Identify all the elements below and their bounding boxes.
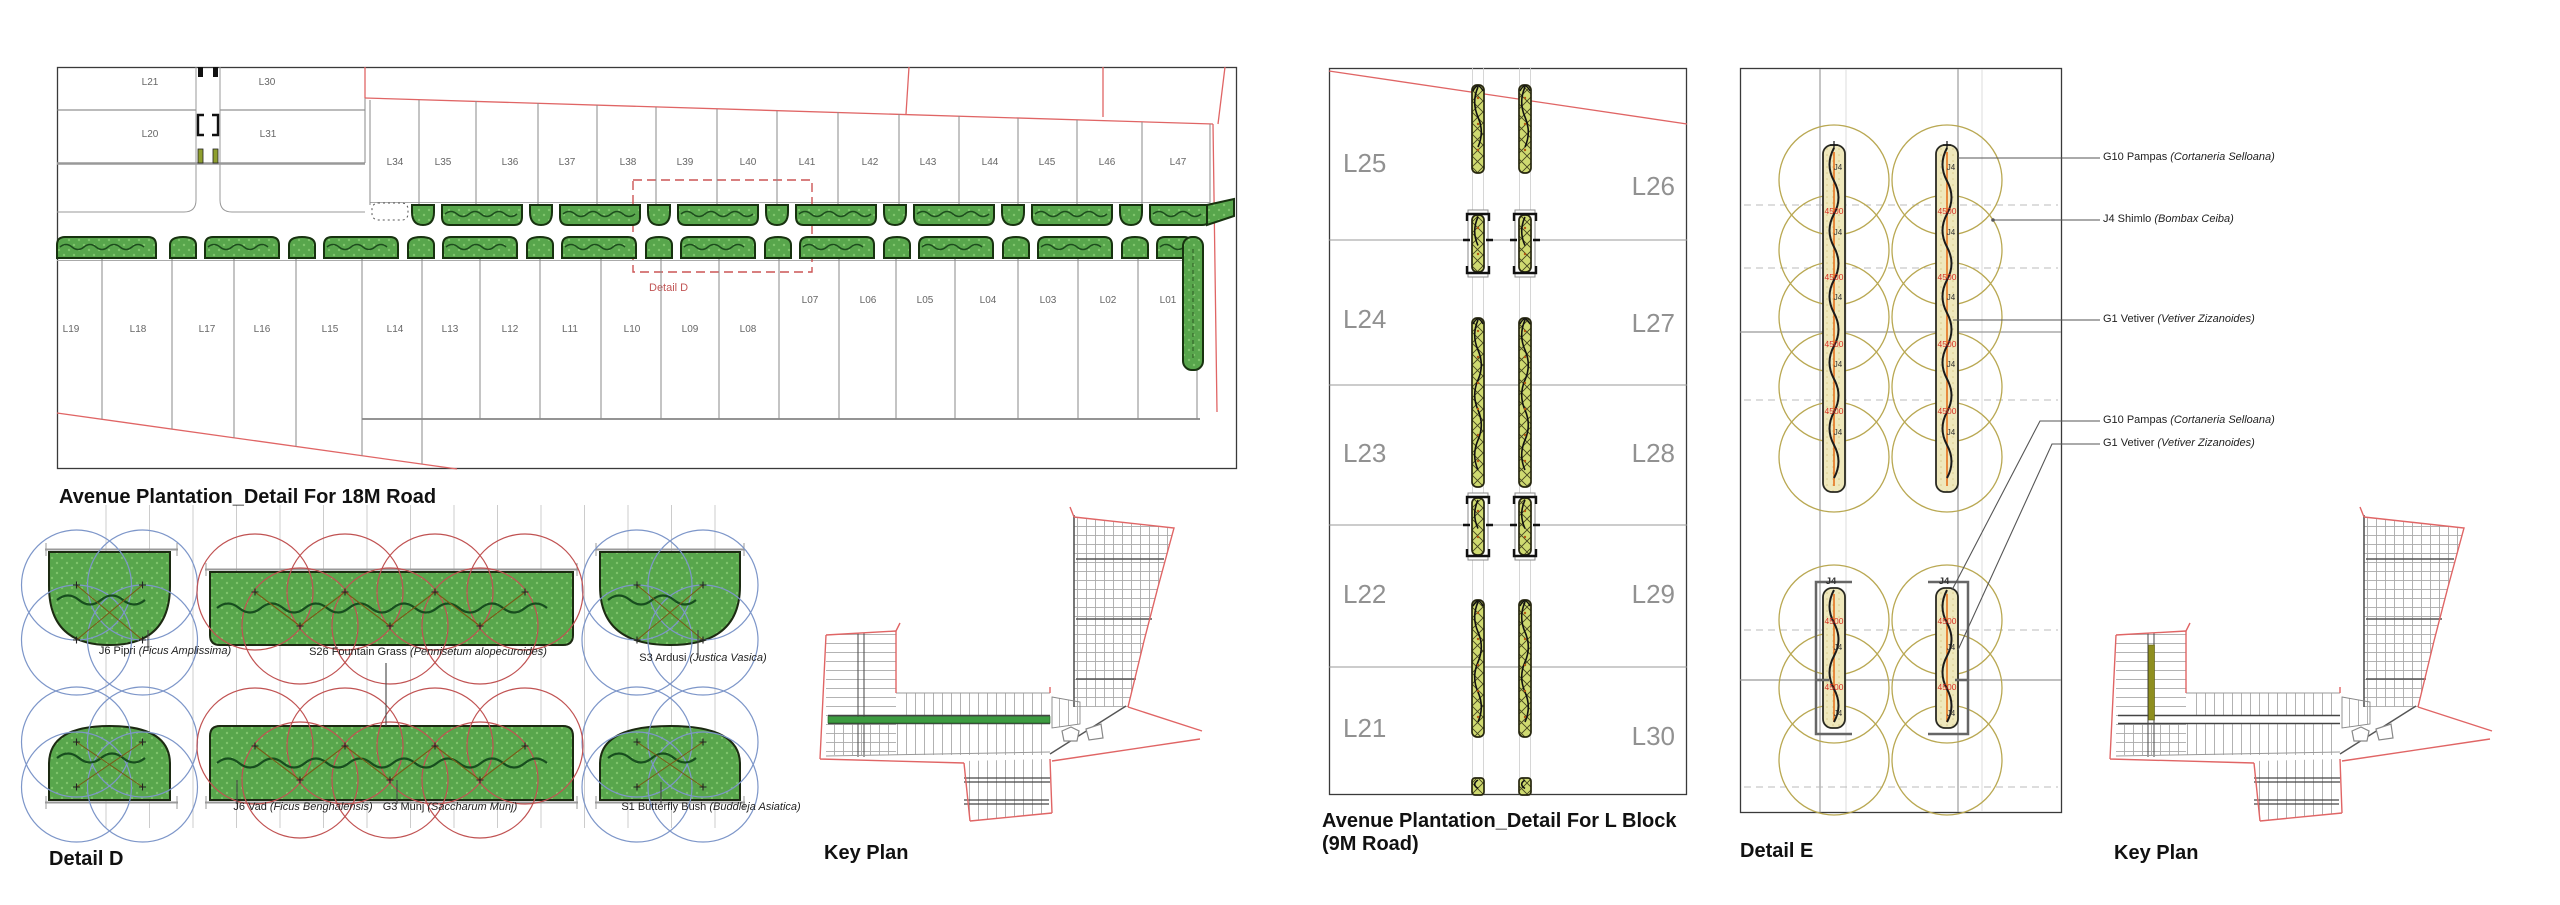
svg-text:L40: L40: [740, 157, 757, 168]
svg-text:J4: J4: [1834, 709, 1843, 718]
plan-dynamic-geometry: [57, 100, 1234, 464]
title-key-plan-left: Key Plan: [824, 842, 908, 865]
road-markers: [198, 67, 218, 163]
structural-lines: [1740, 69, 2061, 812]
svg-text:L04: L04: [980, 295, 997, 306]
plant-label-g3-munj: G3 Munj (Saccharum Munj): [383, 801, 518, 813]
plant-label-g1-vetiver-2: G1 Vetiver (Vetiver Zizanoides): [2103, 437, 2255, 449]
svg-text:4500: 4500: [1938, 339, 1957, 349]
svg-text:L01: L01: [1160, 295, 1177, 306]
highlighted-avenue-olive: [2149, 645, 2155, 720]
svg-text:L09: L09: [682, 324, 699, 335]
svg-text:J4: J4: [1947, 228, 1956, 237]
svg-text:J4: J4: [1947, 428, 1956, 437]
title-l-block-line2: (9M Road): [1322, 833, 1677, 856]
svg-text:J4: J4: [1947, 643, 1956, 652]
svg-text:4500: 4500: [1938, 206, 1957, 216]
title-18m-road: Avenue Plantation_Detail For 18M Road: [59, 486, 436, 509]
svg-text:J4: J4: [1826, 576, 1837, 587]
svg-text:L45: L45: [1039, 157, 1056, 168]
dimension-lines: [1834, 152, 1947, 722]
svg-text:L23: L23: [1343, 438, 1386, 468]
plant-label-j4-shimlo: J4 Shimlo (Bombax Ceiba): [2103, 213, 2234, 225]
svg-text:4500: 4500: [1938, 682, 1957, 692]
svg-text:4500: 4500: [1825, 272, 1844, 282]
lot-number-labels: L25L24L23L22L21L26L27L28L29L30: [1343, 148, 1675, 751]
svg-text:L36: L36: [502, 157, 519, 168]
plant-label-g10-pampas-1: G10 Pampas (Cortaneria Selloana): [2103, 151, 2275, 163]
svg-text:J4: J4: [1947, 709, 1956, 718]
svg-text:L37: L37: [559, 157, 576, 168]
svg-text:L42: L42: [862, 157, 879, 168]
svg-text:L18: L18: [130, 324, 147, 335]
leader-lines: [1952, 158, 2100, 650]
svg-text:L47: L47: [1170, 157, 1187, 168]
plant-label-s26-fountain-grass: S26 Fountain Grass (Pennisetum alopecuro…: [309, 646, 547, 658]
plan-18m-road: Detail D L21L30L20L31L34L35L36L37L38L39L…: [57, 67, 1237, 469]
svg-text:J4: J4: [1834, 360, 1843, 369]
svg-text:J4: J4: [1947, 293, 1956, 302]
svg-text:L38: L38: [620, 157, 637, 168]
svg-text:4500: 4500: [1825, 406, 1844, 416]
plant-label-j6-pipri: J6 Pipri (Ficus Amplissima): [99, 645, 231, 657]
svg-text:L30: L30: [1632, 721, 1675, 751]
key-plan-left-drawing: [812, 495, 1202, 855]
svg-text:J4: J4: [1834, 163, 1843, 172]
svg-text:4500: 4500: [1825, 339, 1844, 349]
svg-text:L25: L25: [1343, 148, 1386, 178]
svg-text:L43: L43: [920, 157, 937, 168]
svg-text:L07: L07: [802, 295, 819, 306]
svg-text:L17: L17: [199, 324, 216, 335]
plant-label-s3-ardusi: S3 Ardusi (Justica Vasica): [639, 652, 766, 664]
planting-strips: [1823, 145, 1958, 728]
svg-text:L21: L21: [142, 77, 159, 88]
plant-label-j6-vad: J6 Vad (Ficus Benghalensis): [233, 801, 372, 813]
svg-text:L11: L11: [562, 324, 578, 335]
highlighted-avenue-green: [828, 717, 1050, 724]
plant-label-s1-butterfly-bush: S1 Butterfly Bush (Buddleja Asiatica): [621, 801, 800, 813]
svg-text:J4: J4: [1834, 228, 1843, 237]
svg-text:J4: J4: [1834, 293, 1843, 302]
svg-text:L30: L30: [259, 77, 276, 88]
svg-text:L44: L44: [982, 157, 999, 168]
svg-text:L06: L06: [860, 295, 877, 306]
svg-text:L27: L27: [1632, 308, 1675, 338]
title-detail-d: Detail D: [49, 848, 123, 871]
svg-text:L02: L02: [1100, 295, 1117, 306]
plant-label-g10-pampas-2: G10 Pampas (Cortaneria Selloana): [2103, 414, 2275, 426]
svg-text:L16: L16: [254, 324, 271, 335]
median-planting-strips: [1463, 85, 1540, 795]
svg-text:L10: L10: [624, 324, 641, 335]
svg-text:L39: L39: [677, 157, 694, 168]
svg-text:L29: L29: [1632, 579, 1675, 609]
plan-l-block-9m-road: L25L24L23L22L21L26L27L28L29L30: [1329, 68, 1687, 795]
svg-text:L08: L08: [740, 324, 757, 335]
detail-d-callout-label: Detail D: [649, 282, 688, 294]
svg-text:L05: L05: [917, 295, 934, 306]
svg-text:L24: L24: [1343, 304, 1386, 334]
red-boundary: [57, 67, 1225, 469]
key-plan-linework: [820, 507, 1202, 821]
svg-text:4500: 4500: [1938, 406, 1957, 416]
svg-text:L03: L03: [1040, 295, 1057, 306]
plantation-drawing-sheet: Detail D L21L30L20L31L34L35L36L37L38L39L…: [0, 0, 2560, 905]
svg-text:L22: L22: [1343, 579, 1386, 609]
svg-text:4500: 4500: [1825, 206, 1844, 216]
svg-text:L14: L14: [387, 324, 404, 335]
svg-text:4500: 4500: [1825, 682, 1844, 692]
svg-text:L35: L35: [435, 157, 452, 168]
svg-text:L21: L21: [1343, 713, 1386, 743]
svg-text:L12: L12: [502, 324, 519, 335]
svg-text:L15: L15: [322, 324, 339, 335]
svg-text:L46: L46: [1099, 157, 1116, 168]
svg-text:J4: J4: [1947, 360, 1956, 369]
detail-d-drawing: [45, 480, 765, 880]
title-l-block: Avenue Plantation_Detail For L Block (9M…: [1322, 810, 1677, 856]
utility-pad: [372, 203, 408, 220]
svg-text:4500: 4500: [1938, 616, 1957, 626]
svg-text:L20: L20: [142, 129, 159, 140]
svg-text:J4: J4: [1947, 163, 1956, 172]
svg-text:L34: L34: [387, 157, 404, 168]
corner-block-lines: [57, 67, 365, 212]
svg-text:L31: L31: [260, 129, 277, 140]
svg-text:J4: J4: [1939, 576, 1950, 587]
svg-text:L26: L26: [1632, 171, 1675, 201]
title-l-block-line1: Avenue Plantation_Detail For L Block: [1322, 810, 1677, 833]
svg-text:L13: L13: [442, 324, 459, 335]
key-plan-right-drawing: [2102, 495, 2492, 855]
plan-border: [1741, 69, 2062, 813]
svg-text:J4: J4: [1834, 643, 1843, 652]
svg-text:4500: 4500: [1938, 272, 1957, 282]
red-boundary: [1329, 71, 1687, 124]
svg-text:J4: J4: [1834, 428, 1843, 437]
plant-label-g1-vetiver-1: G1 Vetiver (Vetiver Zizanoides): [2103, 313, 2255, 325]
title-detail-e: Detail E: [1740, 840, 1813, 863]
svg-text:L41: L41: [799, 157, 816, 168]
svg-text:4500: 4500: [1825, 616, 1844, 626]
title-key-plan-right: Key Plan: [2114, 842, 2198, 865]
svg-text:L28: L28: [1632, 438, 1675, 468]
svg-text:L19: L19: [63, 324, 80, 335]
